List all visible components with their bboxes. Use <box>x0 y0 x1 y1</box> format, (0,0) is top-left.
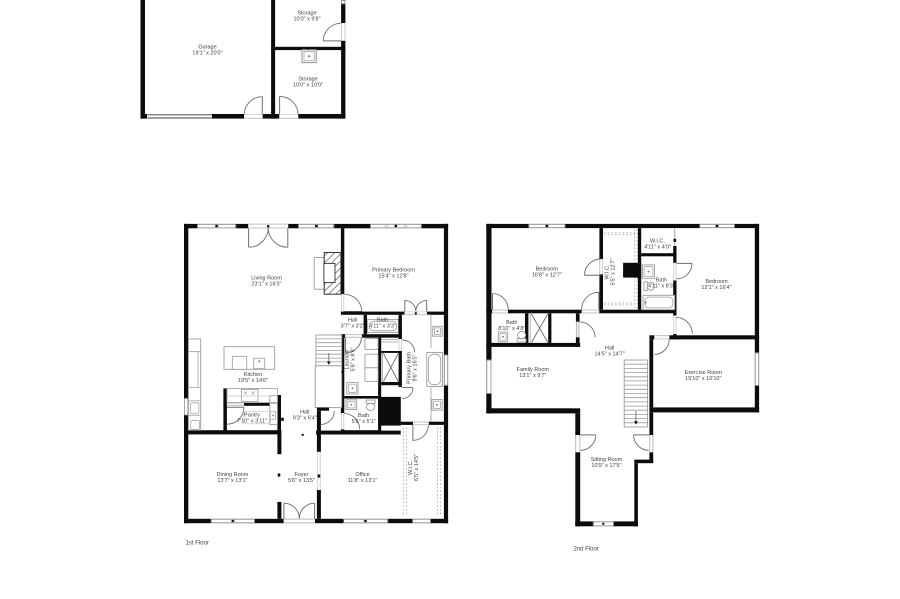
svg-text:5'6" x 13'5": 5'6" x 13'5" <box>288 478 315 484</box>
svg-text:16'8" x 12'7": 16'8" x 12'7" <box>532 273 562 279</box>
svg-text:1st Floor: 1st Floor <box>186 541 209 547</box>
svg-text:12'1" x 16'4": 12'1" x 16'4" <box>701 285 731 291</box>
svg-text:4'11" x 4'0": 4'11" x 4'0" <box>644 244 671 250</box>
svg-text:7'10" x 3'11": 7'10" x 3'11" <box>237 419 267 425</box>
svg-text:14'5" x 14'7": 14'5" x 14'7" <box>595 352 625 358</box>
svg-text:4'11" x 3'3": 4'11" x 3'3" <box>369 324 396 330</box>
svg-text:9'3" x 6'4": 9'3" x 6'4" <box>293 415 317 421</box>
svg-text:2nd Floor: 2nd Floor <box>574 547 599 553</box>
svg-text:15'10" x 10'10": 15'10" x 10'10" <box>685 376 721 382</box>
svg-text:6'5" x 14'5": 6'5" x 14'5" <box>414 454 420 481</box>
svg-text:5'6" x 8'9": 5'6" x 8'9" <box>350 347 356 371</box>
svg-text:10'0" x 9'8": 10'0" x 9'8" <box>293 17 320 23</box>
svg-text:8'10" x 4'8": 8'10" x 4'8" <box>498 326 525 332</box>
svg-text:4'11" x 8'3": 4'11" x 8'3" <box>648 283 675 289</box>
svg-text:10'9" x 17'5": 10'9" x 17'5" <box>591 463 621 469</box>
svg-text:13'7" x 13'1": 13'7" x 13'1" <box>217 478 247 484</box>
svg-text:3'7" x 3'2": 3'7" x 3'2" <box>341 324 365 330</box>
svg-text:23'1" x 16'3": 23'1" x 16'3" <box>251 282 281 288</box>
svg-text:15'4" x 12'8": 15'4" x 12'8" <box>378 274 408 280</box>
svg-text:9'6" x 16'5": 9'6" x 16'5" <box>413 354 419 381</box>
svg-text:10'0" x 10'0": 10'0" x 10'0" <box>293 83 323 89</box>
svg-text:19'1" x 20'0": 19'1" x 20'0" <box>192 51 222 57</box>
svg-text:11'8" x 13'1": 11'8" x 13'1" <box>348 478 378 484</box>
svg-text:5'6" x 5'1": 5'6" x 5'1" <box>352 419 376 425</box>
svg-text:13'1" x 9'7": 13'1" x 9'7" <box>519 373 546 379</box>
svg-text:19'5" x 14'6": 19'5" x 14'6" <box>238 378 268 384</box>
svg-text:5'5" x 12'7": 5'5" x 12'7" <box>611 258 617 285</box>
